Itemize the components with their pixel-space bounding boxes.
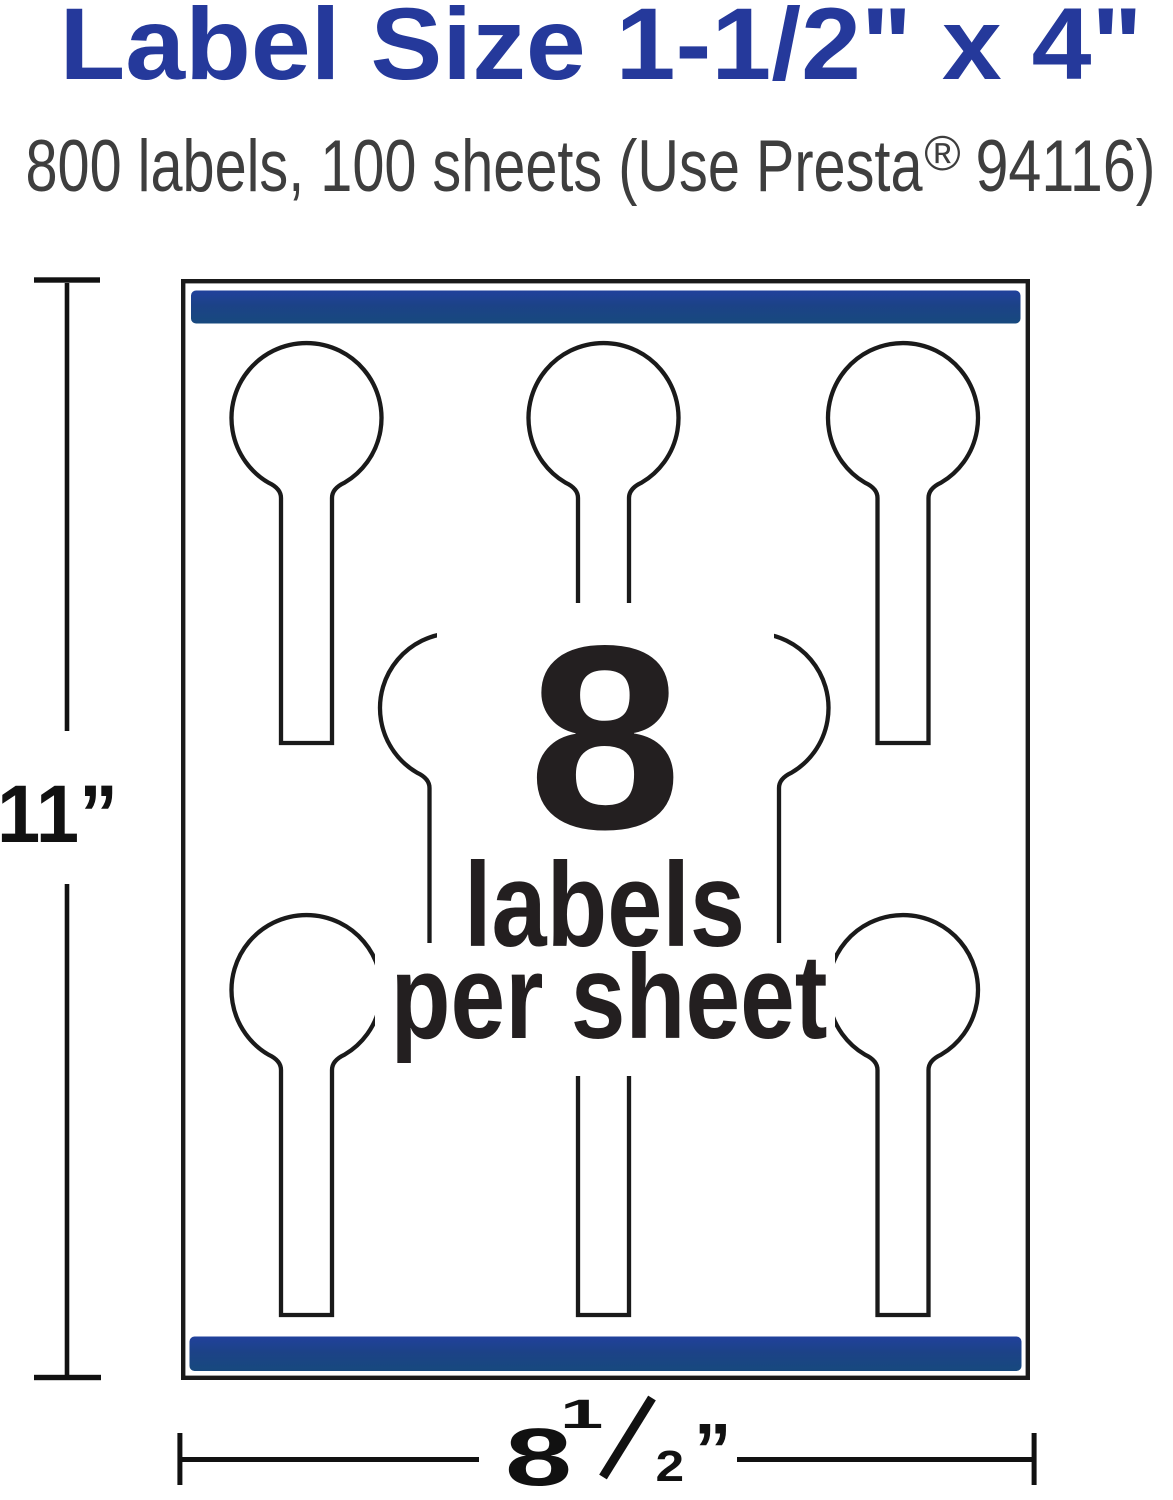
svg-text:94116): 94116) xyxy=(976,126,1156,207)
svg-text:11”: 11” xyxy=(0,769,118,860)
svg-text:”: ” xyxy=(694,1408,732,1492)
svg-text:®: ® xyxy=(924,126,960,181)
svg-text:1: 1 xyxy=(560,1392,603,1437)
svg-text:Label Size 1-1/2" x 4": Label Size 1-1/2" x 4" xyxy=(60,0,1143,101)
svg-text:per sheet: per sheet xyxy=(391,930,828,1064)
svg-text:800 labels, 100 sheets (Use Pr: 800 labels, 100 sheets (Use Presta xyxy=(26,126,923,207)
svg-text:2: 2 xyxy=(656,1442,685,1491)
